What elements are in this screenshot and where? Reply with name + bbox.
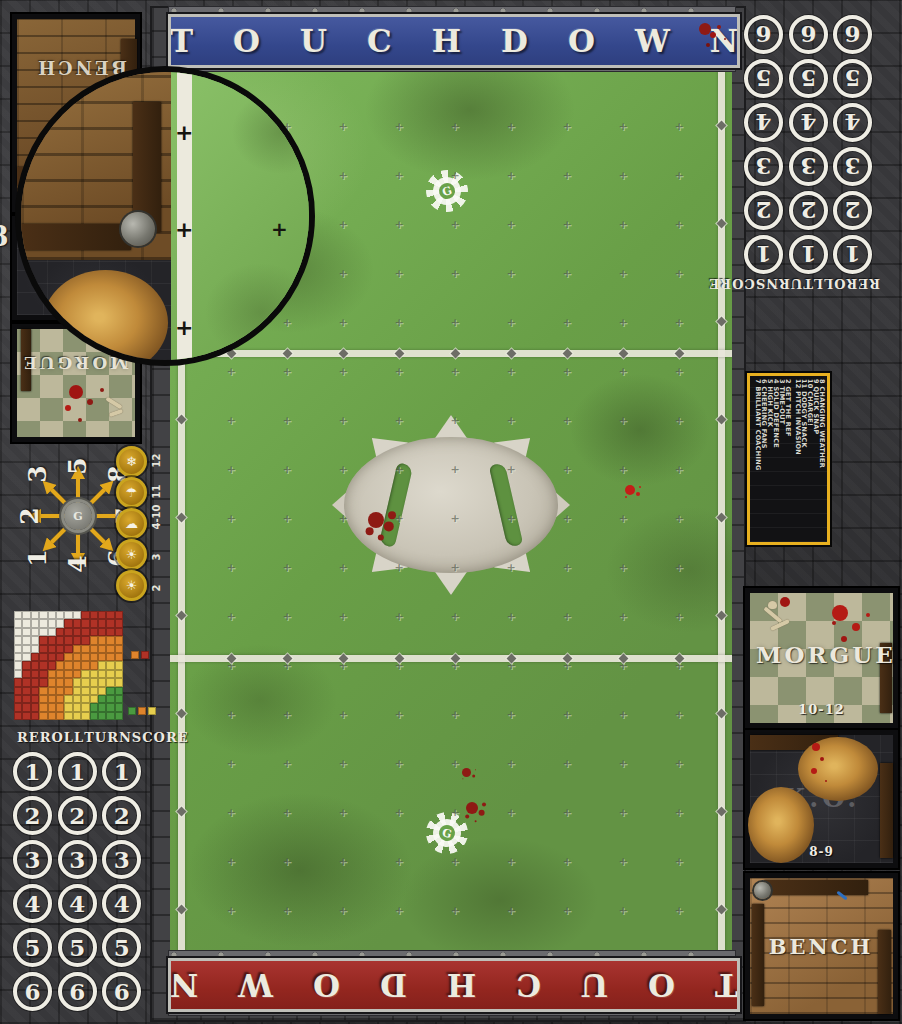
score-circle: 5	[58, 928, 97, 967]
range-cell	[98, 703, 106, 711]
range-legend-cell	[138, 707, 146, 715]
range-cell	[22, 687, 30, 695]
range-cell	[90, 653, 98, 661]
range-cell	[48, 670, 56, 678]
range-cell	[81, 695, 89, 703]
range-cell	[31, 611, 39, 619]
range-cell	[48, 687, 56, 695]
grid-cross: +	[338, 612, 348, 622]
gear-logo-bottom: G	[421, 807, 472, 858]
range-legend-cell	[131, 651, 139, 659]
range-cell	[81, 653, 89, 661]
range-cell	[22, 695, 30, 703]
range-cell	[56, 670, 64, 678]
grid-cross: +	[506, 269, 516, 279]
grid-cross: +	[674, 171, 684, 181]
score-circle: 6	[789, 15, 828, 54]
score-circle: 3	[13, 840, 52, 879]
range-cell	[98, 661, 106, 669]
range-cell	[64, 611, 72, 619]
range-cell	[90, 687, 98, 695]
range-cell	[64, 670, 72, 678]
weather-range-label: 3	[151, 549, 162, 561]
touchdown-banner-bottom-label: TOUCHDOWN	[171, 961, 737, 1009]
range-cell	[56, 712, 64, 720]
ball-body	[344, 437, 558, 573]
range-cell	[81, 712, 89, 720]
morgue-range-label: 10-12	[750, 702, 893, 717]
grid-cross: +	[394, 269, 404, 279]
grid-cross: +	[282, 612, 292, 622]
range-cell	[106, 619, 114, 627]
range-cell	[90, 619, 98, 627]
range-cell	[14, 628, 22, 636]
range-cell	[115, 619, 123, 627]
range-cell	[56, 611, 64, 619]
range-cell	[90, 611, 98, 619]
magnifier-circle: + + + +	[15, 66, 315, 366]
grid-cross: +	[338, 710, 348, 720]
bench-bottom-right-label: BENCH	[760, 934, 882, 959]
grid-cross: +	[506, 367, 516, 377]
range-cell	[31, 670, 39, 678]
wood-beam	[764, 880, 868, 895]
grid-cross: +	[506, 122, 516, 132]
grid-cross: +	[506, 906, 516, 916]
range-cell	[64, 712, 72, 720]
grid-cross: +	[562, 563, 572, 573]
grid-cross: +	[338, 367, 348, 377]
grid-cross: +	[618, 808, 628, 818]
range-cell	[98, 628, 106, 636]
range-cell	[22, 703, 30, 711]
grid-cross: +	[226, 416, 236, 426]
grid-cross: +	[450, 906, 460, 916]
range-cell	[56, 695, 64, 703]
score-track-header: REROLL	[813, 276, 880, 291]
grid-cross: +	[506, 808, 516, 818]
range-cell	[73, 661, 81, 669]
grid-cross: +	[394, 220, 404, 230]
range-cell	[22, 619, 30, 627]
range-cell	[106, 687, 114, 695]
score-track-header: SCORE	[132, 730, 189, 745]
touchdown-banner-top-label: TOUCHDOWN	[171, 17, 737, 65]
score-track-header: TURN	[765, 276, 813, 291]
range-cell	[56, 687, 64, 695]
score-circle: 1	[833, 235, 872, 274]
grid-cross: +	[618, 612, 628, 622]
range-cell	[73, 703, 81, 711]
grid-cross: +	[338, 318, 348, 328]
grid-cross: +	[450, 416, 460, 426]
range-cell	[81, 636, 89, 644]
range-cell	[106, 670, 114, 678]
range-cell	[39, 703, 47, 711]
score-circle: 6	[102, 972, 141, 1011]
range-cell	[81, 628, 89, 636]
range-cell	[31, 687, 39, 695]
score-circle: 5	[102, 928, 141, 967]
grid-cross: +	[562, 220, 572, 230]
turn-dial-number: 4	[64, 552, 92, 576]
grid-cross: +	[338, 220, 348, 230]
range-cell	[73, 678, 81, 686]
range-cell	[73, 611, 81, 619]
range-cell	[90, 695, 98, 703]
weather-row: ❄12	[116, 446, 162, 477]
grid-cross: +	[394, 563, 404, 573]
range-cell	[106, 653, 114, 661]
range-cell	[73, 645, 81, 653]
grid-cross: +	[618, 122, 628, 132]
blood-splatter	[466, 802, 478, 814]
range-cell	[31, 695, 39, 703]
grid-cross: +	[394, 857, 404, 867]
range-cell	[39, 712, 47, 720]
score-circle: 2	[58, 796, 97, 835]
score-circle: 6	[744, 15, 783, 54]
grid-cross: +	[562, 514, 572, 524]
range-cell	[106, 636, 114, 644]
range-legend-bottom	[128, 707, 156, 715]
range-cell	[14, 661, 22, 669]
score-circle: 3	[744, 147, 783, 186]
grid-cross: +	[618, 857, 628, 867]
score-circle: 3	[833, 147, 872, 186]
grid-cross: +	[562, 367, 572, 377]
range-cell	[115, 670, 123, 678]
grid-cross: +	[282, 710, 292, 720]
range-cell	[48, 661, 56, 669]
wood-beam	[21, 224, 131, 250]
range-cell	[81, 619, 89, 627]
grid-cross: +	[618, 416, 628, 426]
range-cell	[106, 695, 114, 703]
range-legend-top	[131, 651, 149, 659]
kickoff-table-text: 8 CHANGING WEATHER9 QUICK SNAP10 CHARGE!…	[753, 379, 825, 539]
score-circle: 3	[102, 840, 141, 879]
range-cell	[64, 636, 72, 644]
grid-cross: +	[450, 220, 460, 230]
grid-cross: +	[282, 906, 292, 916]
range-cell	[48, 619, 56, 627]
range-cell	[31, 703, 39, 711]
magnified-cross: +	[175, 315, 193, 340]
grid-cross: +	[394, 808, 404, 818]
grid-cross: +	[562, 318, 572, 328]
range-legend-cell	[148, 707, 156, 715]
range-cell	[14, 678, 22, 686]
score-circle: 6	[833, 15, 872, 54]
range-cell	[90, 645, 98, 653]
blood-splatter	[699, 23, 711, 35]
touchdown-banner-bottom: TOUCHDOWN	[168, 958, 740, 1012]
range-cell	[90, 703, 98, 711]
range-cell	[64, 703, 72, 711]
range-cell	[64, 695, 72, 703]
grid-cross: +	[506, 514, 516, 524]
score-circle: 5	[744, 59, 783, 98]
grid-cross: +	[674, 563, 684, 573]
grid-cross: +	[394, 318, 404, 328]
range-cell	[22, 636, 30, 644]
bone	[109, 409, 124, 418]
grid-cross: +	[338, 122, 348, 132]
grid-cross: +	[226, 563, 236, 573]
grid-cross: +	[674, 220, 684, 230]
blood-splatter	[812, 743, 820, 751]
metal-boss	[754, 882, 771, 899]
reroll-turn-score-label-left: REROLLTURNSCORE	[17, 730, 151, 745]
range-cell	[73, 619, 81, 627]
grid-cross: +	[338, 416, 348, 426]
grid-cross: +	[618, 563, 628, 573]
range-cell	[64, 619, 72, 627]
grid-cross: +	[394, 612, 404, 622]
blood-splatter	[462, 768, 471, 777]
range-cell	[64, 687, 72, 695]
grid-cross: +	[282, 318, 292, 328]
blood-splatter	[832, 605, 848, 621]
score-track-top-right: 666555444333222111	[744, 15, 874, 274]
range-cell	[64, 678, 72, 686]
score-circle: 2	[789, 191, 828, 230]
weather-range-label: 11	[151, 487, 162, 499]
grid-cross: +	[394, 906, 404, 916]
grid-cross: +	[226, 857, 236, 867]
grid-cross: +	[226, 906, 236, 916]
grid-cross: +	[338, 906, 348, 916]
grid-cross: +	[282, 808, 292, 818]
range-cell	[22, 678, 30, 686]
range-cell	[90, 628, 98, 636]
grid-cross: +	[394, 759, 404, 769]
range-cell	[115, 661, 123, 669]
grid-cross: +	[562, 906, 572, 916]
range-cell	[81, 678, 89, 686]
grid-cross: +	[506, 563, 516, 573]
range-cell	[106, 712, 114, 720]
range-cell	[56, 661, 64, 669]
range-cell	[98, 712, 106, 720]
range-cell	[115, 653, 123, 661]
kickoff-table: 8 CHANGING WEATHER9 QUICK SNAP10 CHARGE!…	[747, 373, 830, 545]
blood-bowl-mat: { "banners": { "top_label": "TOUCHDOWN",…	[0, 0, 902, 1024]
pass-range-chart	[14, 611, 123, 720]
grid-cross: +	[338, 465, 348, 475]
range-cell	[39, 695, 47, 703]
grid-cross: +	[674, 122, 684, 132]
grid-cross: +	[506, 465, 516, 475]
rain-cloud-icon: ☂	[116, 477, 147, 508]
grid-cross: +	[338, 759, 348, 769]
range-cell	[48, 645, 56, 653]
range-cell	[48, 703, 56, 711]
grid-cross: +	[226, 759, 236, 769]
range-cell	[98, 687, 106, 695]
grid-cross: +	[226, 367, 236, 377]
range-cell	[14, 703, 22, 711]
grid-cross: +	[562, 416, 572, 426]
grid-cross: +	[674, 808, 684, 818]
reroll-turn-score-label-right: REROLLTURNSCORE	[746, 276, 880, 291]
range-cell	[64, 653, 72, 661]
grid-cross: +	[338, 857, 348, 867]
grid-cross: +	[674, 514, 684, 524]
grid-cross: +	[674, 710, 684, 720]
score-circle: 4	[102, 884, 141, 923]
range-cell	[56, 653, 64, 661]
grid-cross: +	[674, 857, 684, 867]
grid-cross: +	[394, 710, 404, 720]
skeleton	[768, 601, 777, 609]
range-cell	[56, 628, 64, 636]
bone	[105, 397, 122, 410]
grid-cross: +	[674, 318, 684, 328]
grid-cross: +	[338, 808, 348, 818]
grid-cross: +	[282, 465, 292, 475]
grid-cross: +	[562, 710, 572, 720]
range-cell	[14, 636, 22, 644]
score-circle: 1	[744, 235, 783, 274]
grid-cross: +	[450, 514, 460, 524]
score-circle: 2	[744, 191, 783, 230]
range-cell	[48, 695, 56, 703]
grid-cross: +	[674, 416, 684, 426]
grid-cross: +	[562, 759, 572, 769]
sun-icon: ☀	[116, 539, 147, 570]
range-cell	[115, 636, 123, 644]
range-cell	[22, 628, 30, 636]
score-track-header: SCORE	[708, 276, 765, 291]
range-cell	[98, 645, 106, 653]
range-cell	[14, 687, 22, 695]
score-circle: 1	[13, 752, 52, 791]
ko-range-label: 8-9	[750, 845, 893, 859]
magnified-cross: +	[175, 120, 193, 145]
grid-cross: +	[282, 857, 292, 867]
grid-cross: +	[562, 808, 572, 818]
grid-cross: +	[394, 122, 404, 132]
range-cell	[56, 619, 64, 627]
range-cell	[48, 628, 56, 636]
turn-dial-number: 5	[64, 454, 92, 478]
range-cell	[14, 611, 22, 619]
grid-cross: +	[226, 514, 236, 524]
grid-cross: +	[506, 710, 516, 720]
grid-cross: +	[338, 171, 348, 181]
morgue-bottom-right: MORGUE 10-12	[745, 588, 898, 728]
range-cell	[73, 653, 81, 661]
range-cell	[48, 678, 56, 686]
grid-cross: +	[674, 367, 684, 377]
range-cell	[115, 628, 123, 636]
grid-cross: +	[618, 906, 628, 916]
range-cell	[56, 678, 64, 686]
grid-cross: +	[450, 269, 460, 279]
grid-cross: +	[226, 612, 236, 622]
range-cell	[48, 636, 56, 644]
range-cell	[73, 628, 81, 636]
grid-cross: +	[226, 465, 236, 475]
grid-cross: +	[506, 612, 516, 622]
range-cell	[31, 645, 39, 653]
grid-cross: +	[674, 906, 684, 916]
range-cell	[98, 695, 106, 703]
range-cell	[39, 661, 47, 669]
range-cell	[14, 695, 22, 703]
grid-cross: +	[674, 612, 684, 622]
weather-row: ☀3	[116, 539, 162, 570]
grid-cross: +	[450, 563, 460, 573]
range-cell	[115, 687, 123, 695]
range-cell	[31, 619, 39, 627]
turn-dial-number: 1	[24, 546, 52, 570]
blood-splatter	[368, 512, 384, 528]
grid-cross: +	[506, 759, 516, 769]
magnified-cross: +	[175, 217, 193, 242]
range-cell	[106, 678, 114, 686]
sun-cloud-icon: ☁	[116, 508, 147, 539]
range-cell	[22, 712, 30, 720]
range-cell	[106, 661, 114, 669]
grid-cross: +	[506, 416, 516, 426]
range-legend-cell	[141, 651, 149, 659]
range-cell	[98, 670, 106, 678]
range-cell	[31, 661, 39, 669]
grid-cross: +	[618, 367, 628, 377]
grid-cross: +	[338, 269, 348, 279]
score-track-bottom-left: 111222333444555666	[13, 752, 143, 1011]
grid-cross: +	[394, 416, 404, 426]
range-cell	[39, 687, 47, 695]
weather-range-label: 2	[151, 580, 162, 592]
turn-dial-hub: G	[64, 502, 92, 530]
range-cell	[22, 611, 30, 619]
morgue-bottom-right-label: MORGUE	[756, 641, 886, 668]
score-circle: 2	[833, 191, 872, 230]
range-cell	[115, 695, 123, 703]
score-circle: 5	[789, 59, 828, 98]
straw-pile	[798, 737, 878, 801]
gear-logo-top: G	[421, 165, 474, 218]
range-cell	[31, 628, 39, 636]
range-cell	[39, 611, 47, 619]
grid-cross: +	[282, 759, 292, 769]
range-cell	[14, 645, 22, 653]
grid-cross: +	[562, 857, 572, 867]
range-cell	[14, 670, 22, 678]
grid-cross: +	[618, 465, 628, 475]
score-circle: 4	[833, 103, 872, 142]
range-cell	[39, 678, 47, 686]
score-circle: 5	[833, 59, 872, 98]
range-cell	[81, 670, 89, 678]
range-cell	[81, 687, 89, 695]
weather-range-label: 12	[151, 456, 162, 468]
range-cell	[73, 636, 81, 644]
snow-cloud-icon: ❄	[116, 446, 147, 477]
blood-splatter	[625, 485, 635, 495]
range-cell	[115, 712, 123, 720]
bench-dugout-bottom-right: BENCH	[745, 873, 898, 1019]
range-cell	[98, 678, 106, 686]
range-cell	[73, 695, 81, 703]
grid-cross: +	[618, 318, 628, 328]
grid-cross: +	[394, 367, 404, 377]
grid-cross: +	[450, 612, 460, 622]
